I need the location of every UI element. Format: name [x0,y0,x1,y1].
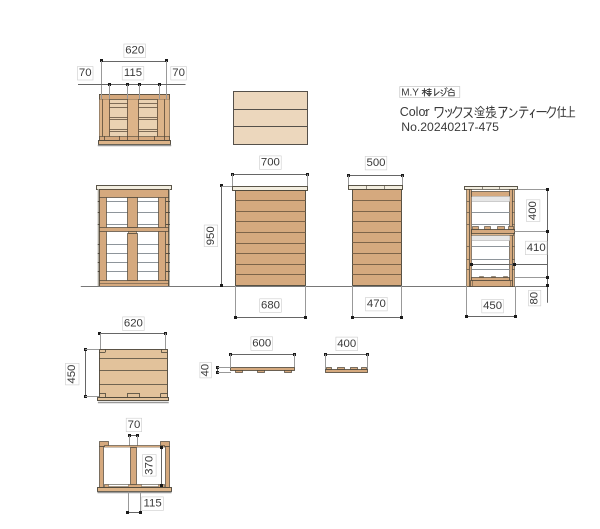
svg-text::: : [424,107,427,119]
svg-text:450: 450 [66,365,78,384]
svg-text:370: 370 [143,456,155,475]
svg-text:115: 115 [124,67,142,79]
svg-text:70: 70 [79,67,92,79]
svg-text:70: 70 [128,419,141,431]
svg-text:450: 450 [483,300,502,312]
svg-text:680: 680 [261,300,280,312]
svg-text:500: 500 [366,157,385,169]
svg-text:115: 115 [144,498,162,510]
svg-text:No.20240217-475: No.20240217-475 [401,120,499,134]
svg-text:400: 400 [527,201,539,220]
svg-text:M.Y: M.Y [401,87,419,98]
svg-text:40: 40 [200,364,212,377]
svg-text:80: 80 [529,292,541,305]
svg-text:70: 70 [172,67,185,79]
svg-text:950: 950 [205,226,217,245]
svg-text:620: 620 [125,45,144,57]
svg-text:470: 470 [367,298,386,310]
svg-text:410: 410 [527,242,546,254]
svg-text:700: 700 [261,157,280,169]
svg-text:600: 600 [252,338,271,350]
svg-text:400: 400 [337,338,356,350]
svg-text:620: 620 [124,318,143,330]
